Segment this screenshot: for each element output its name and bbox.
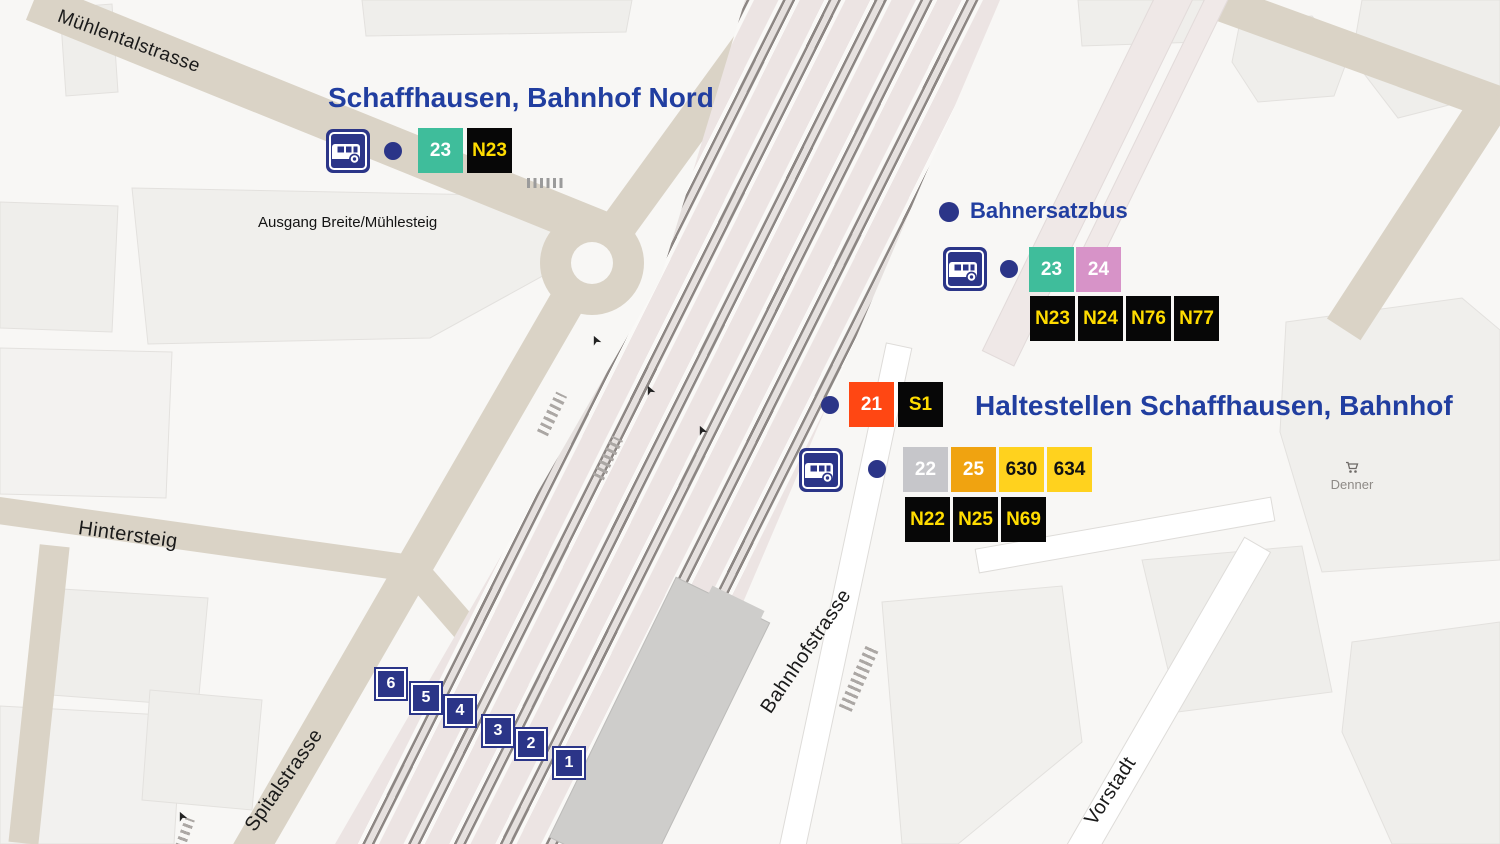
line-badge-n23: N23 bbox=[1030, 296, 1075, 341]
poi-denner-label: Denner bbox=[1326, 477, 1378, 492]
bus-stop-icon[interactable] bbox=[798, 447, 844, 493]
line-badge-n25: N25 bbox=[953, 497, 998, 542]
building bbox=[1342, 622, 1500, 844]
stop-marker-dot bbox=[821, 396, 839, 414]
platform-sign-6: 6 bbox=[376, 669, 406, 699]
line-badge-n23: N23 bbox=[467, 128, 512, 173]
building bbox=[0, 348, 172, 498]
line-badge-s1: S1 bbox=[898, 382, 943, 427]
line-badge-n24: N24 bbox=[1078, 296, 1123, 341]
line-badge-25: 25 bbox=[951, 447, 996, 492]
line-badge-n77: N77 bbox=[1174, 296, 1219, 341]
poi-denner: Denner bbox=[1326, 461, 1378, 492]
line-badge-22: 22 bbox=[903, 447, 948, 492]
bus-stop-icon[interactable] bbox=[942, 246, 988, 292]
platform-sign-5: 5 bbox=[411, 683, 441, 713]
shopping-cart-icon bbox=[1345, 461, 1359, 474]
station-map-canvas[interactable]: ➤ ➤ ➤ ➤ Mühlentalstrasse Hintersteig Spi… bbox=[0, 0, 1500, 844]
stop-marker-dot bbox=[868, 460, 886, 478]
line-badge-23: 23 bbox=[418, 128, 463, 173]
platform-sign-4: 4 bbox=[445, 696, 475, 726]
line-badge-24: 24 bbox=[1076, 247, 1121, 292]
stop-marker-dot bbox=[939, 202, 959, 222]
bus-stop-icon[interactable] bbox=[325, 128, 371, 174]
platform-sign-3: 3 bbox=[483, 716, 513, 746]
building bbox=[1280, 298, 1500, 572]
platform-sign-2: 2 bbox=[516, 729, 546, 759]
roundabout bbox=[540, 211, 644, 315]
line-badge-634: 634 bbox=[1047, 447, 1092, 492]
building bbox=[142, 690, 262, 810]
building bbox=[882, 586, 1082, 844]
line-badge-23: 23 bbox=[1029, 247, 1074, 292]
map-title-haltestellen: Haltestellen Schaffhausen, Bahnhof bbox=[975, 390, 1453, 422]
platform-sign-1: 1 bbox=[554, 748, 584, 778]
stop-title-bahnersatzbus: Bahnersatzbus bbox=[970, 198, 1128, 224]
stop-marker-dot bbox=[1000, 260, 1018, 278]
line-badge-21: 21 bbox=[849, 382, 894, 427]
line-badge-n69: N69 bbox=[1001, 497, 1046, 542]
line-badge-630: 630 bbox=[999, 447, 1044, 492]
stop-title-bahnhof-nord: Schaffhausen, Bahnhof Nord bbox=[328, 82, 714, 114]
crosswalk-marking bbox=[527, 178, 563, 188]
road-right-curve bbox=[1327, 84, 1500, 341]
building bbox=[0, 202, 118, 332]
building bbox=[362, 0, 632, 36]
line-badge-n76: N76 bbox=[1126, 296, 1171, 341]
line-badge-n22: N22 bbox=[905, 497, 950, 542]
building bbox=[38, 588, 208, 706]
stop-marker-dot bbox=[384, 142, 402, 160]
exit-label-breite-muehlesteig: Ausgang Breite/Mühlesteig bbox=[258, 214, 437, 231]
